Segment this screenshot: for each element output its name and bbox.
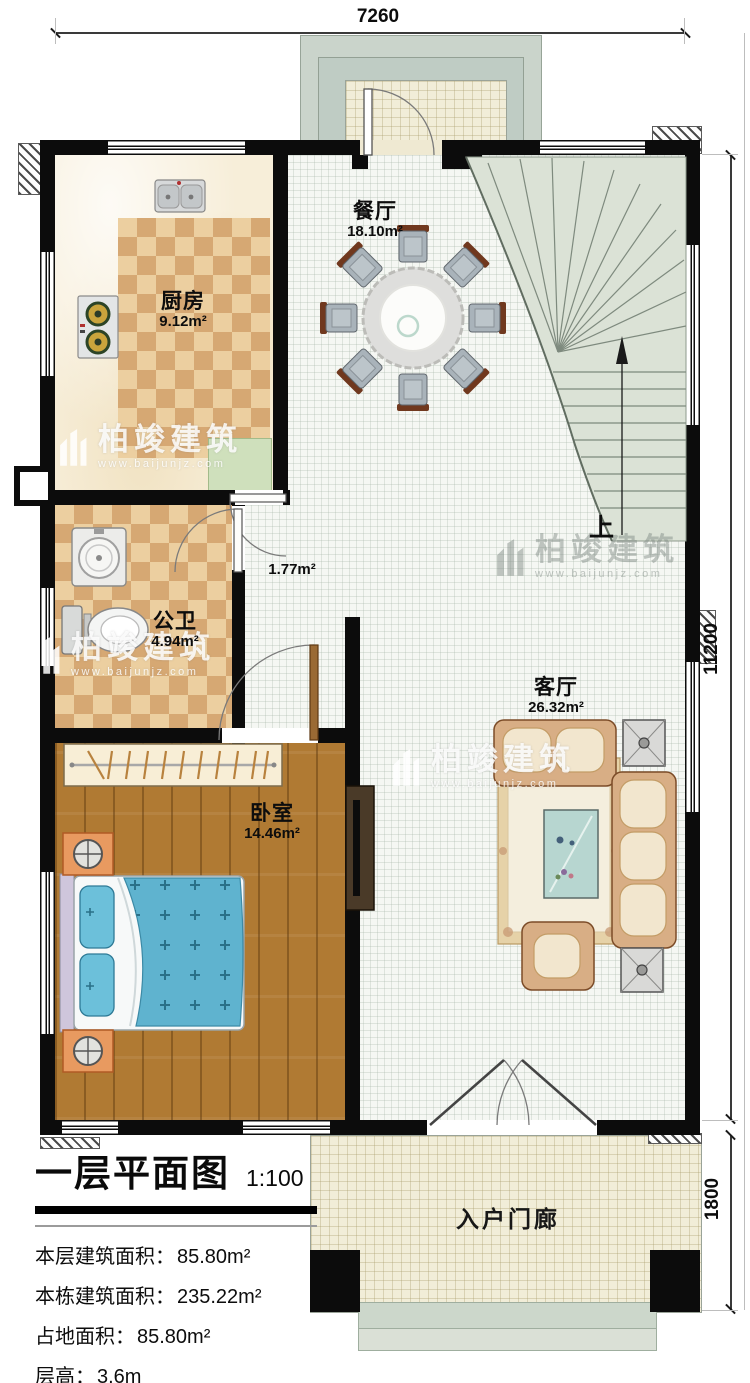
window-kitchen-top (108, 140, 245, 155)
wall-top-3 (442, 140, 540, 155)
label-kitchen: 厨房 9.12m² (159, 290, 207, 330)
dim-porch-right: 1800 (702, 1178, 724, 1220)
floor-plan-canvas: 柏竣建筑 www.baijunjz.com 柏竣建筑 www.baijunjz.… (0, 0, 750, 1383)
room-area: 1.77m² (268, 562, 316, 579)
wall-kitchen-dining (273, 155, 288, 505)
entry-door-opening (427, 1120, 597, 1135)
window-stairs-top (540, 140, 645, 155)
dim-top: 7260 (357, 6, 399, 28)
stat-building-area: 本栋建筑面积：235.22m² (35, 1287, 335, 1307)
stat-value: 85.80m² (137, 1326, 210, 1348)
dim-ext (702, 1310, 738, 1311)
hatch-top-left (18, 143, 42, 195)
window-bedroom-left (40, 872, 55, 1034)
label-bathroom: 公卫 4.94m² (151, 610, 199, 650)
drawing-scale: 1:100 (246, 1165, 304, 1192)
door-jamb-back-left (352, 155, 368, 169)
dim-ext (744, 33, 745, 1310)
dim-line-top (55, 32, 685, 34)
room-name: 餐厅 (347, 200, 403, 224)
dim-ext (55, 18, 56, 44)
entry-porch-pillar-right (650, 1250, 700, 1312)
bathroom-floor (55, 505, 232, 742)
stat-floor-height: 层高：3.6m (35, 1367, 335, 1383)
title-block: 一层平面图 1:100 本层建筑面积：85.80m² 本栋建筑面积：235.22… (35, 1143, 335, 1383)
stat-label: 占地面积： (35, 1326, 135, 1348)
dim-line-right (730, 155, 732, 1120)
kitchen-tile (118, 218, 270, 458)
wall-bottom (40, 1120, 700, 1135)
window-bedroom-bottom-1 (62, 1120, 118, 1135)
wall-bedroom-east (345, 617, 360, 1135)
entry-porch-step-2 (358, 1328, 657, 1351)
back-porch-tile (345, 80, 507, 147)
door-jamb-back-right (442, 155, 482, 169)
stat-label: 层高： (35, 1366, 95, 1383)
label-dining: 餐厅 18.10m² (347, 200, 403, 240)
title-rule-thin (35, 1225, 317, 1227)
back-door-opening (360, 140, 442, 155)
window-kitchen-left (40, 252, 55, 376)
kitchen-mat (208, 438, 272, 493)
stat-footprint-area: 占地面积：85.80m² (35, 1327, 335, 1347)
stat-value: 85.80m² (177, 1246, 250, 1268)
stat-value: 3.6m (97, 1366, 141, 1383)
pilaster-left-inner (20, 472, 48, 500)
room-name: 卧室 (244, 802, 300, 826)
dim-ext (702, 154, 738, 155)
bedroom-floor (55, 743, 345, 1120)
title-head: 一层平面图 1:100 (35, 1143, 335, 1197)
room-area: 18.10m² (347, 224, 403, 241)
bedroom-door-opening (222, 728, 318, 743)
label-living: 客厅 26.32m² (528, 676, 584, 716)
page-title: 一层平面图 (35, 1143, 230, 1197)
window-living-right (685, 662, 700, 812)
wall-kitchen-south (40, 490, 235, 505)
label-entry-porch: 入户门廊 (456, 1200, 560, 1234)
room-name: 厨房 (159, 290, 207, 314)
dim-right: 11200 (701, 623, 723, 675)
room-area: 9.12m² (159, 314, 207, 331)
room-area: 26.32m² (528, 700, 584, 717)
window-bedroom-bottom-2 (243, 1120, 330, 1135)
room-name: 公卫 (151, 610, 199, 634)
kitchen-door-opening (235, 490, 283, 505)
dim-ext (684, 18, 685, 44)
label-corridor: 1.77m² (268, 562, 316, 579)
stat-value: 235.22m² (177, 1286, 262, 1308)
dim-line-porch-right (730, 1135, 732, 1310)
room-area: 4.94m² (151, 634, 199, 651)
room-name: 客厅 (528, 676, 584, 700)
stairs-up-label: 上 (589, 508, 614, 544)
title-rule-thick (35, 1206, 317, 1214)
stat-floor-area: 本层建筑面积：85.80m² (35, 1247, 335, 1267)
wall-top-2 (245, 140, 360, 155)
stat-label: 本栋建筑面积： (35, 1286, 175, 1308)
bathroom-door-opening (232, 506, 245, 570)
room-area: 14.46m² (244, 826, 300, 843)
window-stairs-right (685, 245, 700, 425)
dim-ext (702, 1120, 738, 1121)
entry-porch-step-1 (358, 1302, 657, 1330)
label-bedroom: 卧室 14.46m² (244, 802, 300, 842)
window-bathroom-left (40, 588, 55, 666)
wall-kitchen-south-jamb (283, 490, 290, 505)
stat-label: 本层建筑面积： (35, 1246, 175, 1268)
